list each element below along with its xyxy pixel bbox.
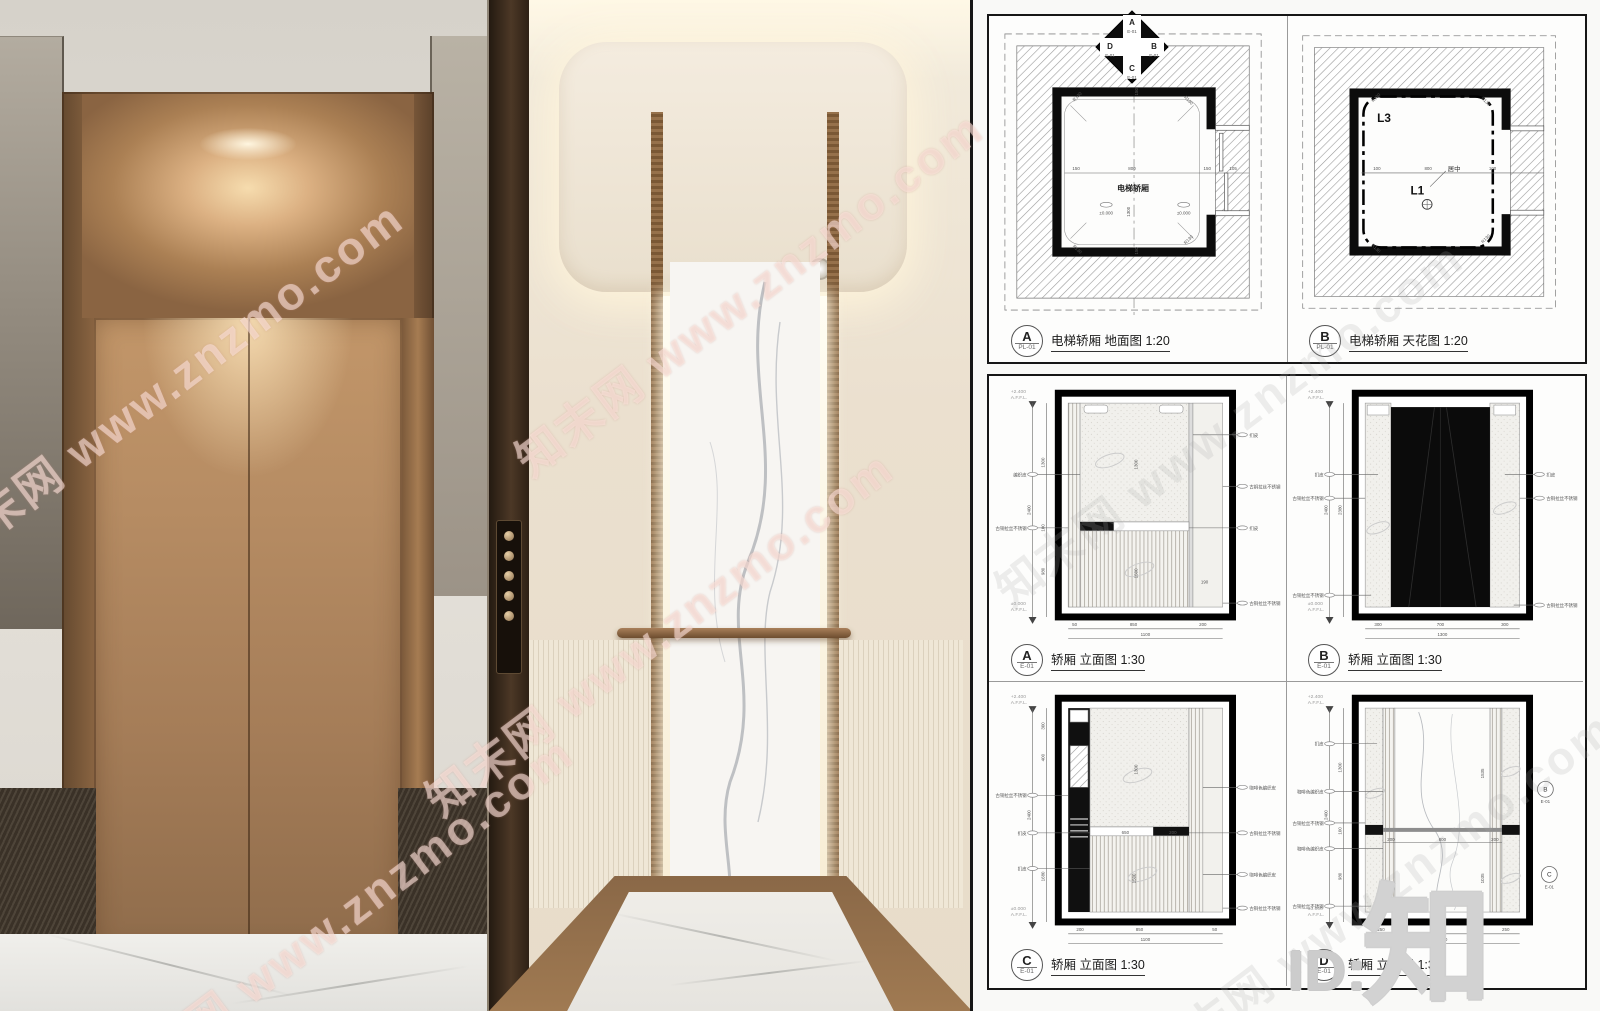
level-label: A.F.F.L. [1308,700,1324,706]
drawing-letter: C [1022,954,1031,967]
dim-label: 800 [1128,166,1136,171]
dim-label: 200 [1491,837,1499,842]
drawing-letter: B [1320,330,1329,343]
bronze-trim-right [827,112,839,912]
drawing-tag: PL-01 [1015,343,1038,352]
lobby-marble-floor [0,934,487,1011]
marble-vein [611,912,836,962]
drawing-title-text: 轿厢 立面图 1:30 [1348,649,1442,671]
key-ref: E-01 [1127,75,1137,80]
drawing-tag: E-01 [1017,662,1037,671]
floor-button-icon [504,571,514,581]
material-label: 咖啡色编织皮 [1249,871,1276,878]
drawing-bubble: B PL-01 [1309,325,1341,357]
material-label: 古铜拉丝不锈钢 [1249,600,1281,607]
marble-vein [670,960,869,986]
level-label: A.F.F.L. [1308,607,1324,613]
dim-label: 980 [1337,872,1342,880]
marble-veins [670,262,820,914]
dim-label: 2400 [1027,505,1032,515]
dim-label: 800 [1439,927,1447,932]
key-ref: E-01 [1149,53,1159,58]
level-label: A.F.F.L. [1308,395,1324,401]
dim-label: 1035 [1480,873,1485,883]
material-label: 咖啡色编织皮 [1297,788,1324,795]
lobby-left-leather-panel [0,36,64,629]
level-label: ±0.000 [1099,211,1113,216]
ribbed-wainscot-left [529,640,651,908]
elevation-d-drawing: +2.400 A.F.F.L. ±0.000 A.F.F.L. 1300 240… [1286,683,1583,955]
dim-label: 190 [1201,579,1209,584]
dim-label: 50 [1072,622,1077,627]
material-label: 扪皮 [1018,830,1027,837]
dim-label: 100 [1489,166,1497,171]
material-label: 扪皮 [1315,471,1324,478]
cad-panel: R130 R130 R130 R130 150 800 150 105 150 … [970,0,1600,1011]
dim-label: 1500 [1132,873,1137,883]
elevation-key-diamond-icon: A E-01 B E-01 C E-01 D E-01 [1093,8,1171,86]
drawing-bubble: A PL-01 [1011,325,1043,357]
material-label: 咖啡色编织皮 [1297,846,1324,853]
dim-label: 300 [1501,622,1509,627]
room-label: 电梯轿厢 [1117,183,1149,193]
level-label: A.F.F.L. [1011,912,1027,918]
key-ref: E-01 [1105,53,1115,58]
dim-label: 300 [1040,722,1045,730]
level-label: +2.400 [1308,389,1323,395]
elevator-doors [94,318,402,952]
dim-label: 1300 [1337,762,1342,772]
level-label: ±0.000 [1011,601,1026,607]
baseboard-left [0,788,96,936]
level-label: ±0.000 [1177,211,1191,216]
ref-bubble-tag: E-01 [1541,799,1551,804]
cab-control-column [489,0,529,1011]
material-label: 编织皮 [1013,471,1027,478]
drawing-title-text: 轿厢 立面图 1:30 [1051,649,1145,671]
level-label: +2.400 [1308,694,1323,700]
ceiling-light-label: L1 [1410,185,1424,198]
material-label: 古铜拉丝不锈钢 [1293,820,1325,827]
elevation-d-cell: +2.400 A.F.F.L. ±0.000 A.F.F.L. 1300 240… [1286,681,1583,986]
material-label: 咖啡色编织皮 [1249,784,1276,791]
cad-sheet-plans: R130 R130 R130 R130 150 800 150 105 150 … [987,14,1587,364]
drawing-tag: E-01 [1314,662,1334,671]
dim-label: 1535 [1480,768,1485,778]
floor-button-icon [504,531,514,541]
material-label: 古铜拉丝不锈钢 [1249,830,1281,837]
lobby-render [0,0,487,1011]
elevation-c-drawing: +2.400 A.F.F.L. ±0.000 A.F.F.L. 300 400 … [989,683,1286,955]
dim-label: 200 [1169,830,1177,835]
dim-label: 150 [1134,246,1139,254]
floor-button-icon [504,591,514,601]
ceiling-panel [559,42,907,292]
drawing-tag: PL-01 [1313,343,1336,352]
marble-back-wall [670,262,820,914]
ref-bubble-letter: B [1543,786,1547,793]
dim-label: 800 [1424,166,1432,171]
baseboard-right [398,788,487,936]
dim-label: 100 [1337,827,1342,835]
cab-interior-render [487,0,972,1011]
dim-label: 850 [1136,927,1144,932]
level-label: A.F.F.L. [1011,700,1027,706]
cad-sheet-elevations: +2.400 A.F.F.L. ±0.000 A.F.F.L. 1300 240… [987,374,1587,990]
material-label: 古铜拉丝不锈钢 [1546,495,1578,502]
drawing-letter: B [1319,649,1328,662]
marble-vein [44,933,297,998]
dim-label: 100 [1373,166,1381,171]
key-letter: A [1129,18,1135,27]
dim-label: 1300 [1437,632,1447,637]
composite-product-image: R130 R130 R130 R130 150 800 150 105 150 … [0,0,1600,1011]
dim-label: 650 [1122,830,1130,835]
dim-label: 2400 [1324,505,1329,515]
dim-label: 250 [1377,927,1385,932]
dim-label: 700 [1437,622,1445,627]
dim-label: 200 [1199,622,1207,627]
material-label: 扪皮 [1315,741,1324,748]
drawing-tag: E-01 [1314,967,1334,976]
level-label: +2.400 [1011,389,1026,395]
dim-label: 200 [1076,927,1084,932]
key-letter: D [1107,42,1113,51]
elevation-d-title: DE-01 轿厢 立面图 1:30 [1308,949,1442,981]
elevation-b-cell: +2.400 A.F.F.L. ±0.000 A.F.F.L. 2400 238… [1286,376,1583,682]
lobby-right-leather-panel [430,36,487,596]
dim-label: 1300 [1134,459,1139,469]
elevation-b-drawing: +2.400 A.F.F.L. ±0.000 A.F.F.L. 2400 238… [1286,378,1583,650]
door-center-seam [248,318,250,952]
elevation-b-title: BE-01 轿厢 立面图 1:30 [1308,644,1442,676]
ref-bubble-tag: E-01 [1545,884,1555,889]
dim-label: 105 [1229,166,1237,171]
level-label: A.F.F.L. [1308,912,1324,918]
material-label: 古铜拉丝不锈钢 [1293,495,1325,502]
floor-button-icon [504,611,514,621]
marble-vein [231,965,468,1005]
dim-label: 1500 [1134,568,1139,578]
drawing-letter: A [1022,330,1031,343]
dim-label: 400 [1040,753,1045,761]
dim-label: 150 [1134,88,1139,96]
drawing-title-text: 电梯轿厢 地面图 1:20 [1051,330,1170,352]
ribbed-wainscot-right [839,640,963,908]
elevation-a-title: AE-01 轿厢 立面图 1:30 [1011,644,1145,676]
key-ref: E-01 [1127,29,1137,34]
material-label: 扪皮 [1546,471,1555,478]
drawing-title-text: 电梯轿厢 天花图 1:20 [1349,330,1468,352]
level-label: +2.400 [1011,694,1026,700]
dim-label: 250 [1502,927,1510,932]
cab-control-panel [496,520,522,674]
elevation-c-title: CE-01 轿厢 立面图 1:30 [1011,949,1145,981]
level-label: A.F.F.L. [1011,607,1027,613]
material-label: 扪皮 [1249,525,1258,532]
plan-ceiling-drawing: L3 L1 居中 100 800 100 R130 R130 R130 R130 [1287,22,1581,322]
handrail [617,628,851,638]
dim-label: 2380 [1337,505,1342,515]
material-label: 古铜拉丝不锈钢 [1293,903,1325,910]
dim-label: 300 [1374,622,1382,627]
dim-label: 1680 [1040,871,1045,881]
drawing-letter: D [1319,954,1328,967]
material-label: 扪皮 [1249,432,1258,439]
dim-label: 1300 [1126,206,1131,216]
material-label: 扪皮 [1018,865,1027,872]
material-label: 古铜拉丝不锈钢 [1546,602,1578,609]
dim-label: 2400 [1027,810,1032,820]
material-label: 古铜拉丝不锈钢 [1249,905,1281,912]
drawing-tag: E-01 [1017,967,1037,976]
dim-label: 1100 [1141,937,1151,942]
dim-label: 200 [1387,837,1395,842]
dim-label: 980 [1040,567,1045,575]
note-label: 居中 [1448,164,1461,173]
key-letter: B [1151,42,1157,51]
level-label: ±0.000 [1308,601,1323,607]
ceiling-light-label: L3 [1377,112,1391,125]
elevation-c-cell: +2.400 A.F.F.L. ±0.000 A.F.F.L. 300 400 … [989,681,1287,986]
dim-label: 2400 [1324,810,1329,820]
dim-label: 850 [1130,622,1138,627]
dim-label: 50 [1212,927,1217,932]
dim-label: 1300 [1134,764,1139,774]
key-letter: C [1129,64,1135,73]
material-label: 古铜拉丝不锈钢 [996,792,1028,799]
dim-label: 1100 [1141,632,1151,637]
material-label: 古铜拉丝不锈钢 [1293,592,1325,599]
drawing-title-text: 轿厢 立面图 1:30 [1348,954,1442,976]
elevation-a-drawing: +2.400 A.F.F.L. ±0.000 A.F.F.L. 1300 240… [989,378,1286,650]
level-label: A.F.F.L. [1011,395,1027,401]
drawing-title-text: 轿厢 立面图 1:30 [1051,954,1145,976]
drawing-letter: A [1022,649,1031,662]
portal-ceiling [82,94,414,318]
dim-label: 150 [1072,166,1080,171]
elevation-a-cell: +2.400 A.F.F.L. ±0.000 A.F.F.L. 1300 240… [989,376,1287,682]
plan-floor-title: A PL-01 电梯轿厢 地面图 1:20 [1011,325,1170,357]
ref-bubble-letter: C [1547,871,1552,878]
material-label: 古铜拉丝不锈钢 [1249,483,1281,490]
plan-ceiling-cell: L3 L1 居中 100 800 100 R130 R130 R130 R130 [1287,16,1581,362]
floor-button-icon [504,551,514,561]
dim-label: 1300 [1437,937,1447,942]
dim-label: 1300 [1040,457,1045,467]
dim-label: 800 [1439,837,1447,842]
elevator-portal-frame [62,92,434,960]
recessed-light-icon [200,128,296,160]
material-label: 古铜拉丝不锈钢 [996,525,1028,532]
dim-label: 150 [1204,166,1212,171]
plan-ceiling-title: B PL-01 电梯轿厢 天花图 1:20 [1309,325,1468,357]
level-label: ±0.000 [1011,906,1026,912]
bronze-trim-left [651,112,663,912]
